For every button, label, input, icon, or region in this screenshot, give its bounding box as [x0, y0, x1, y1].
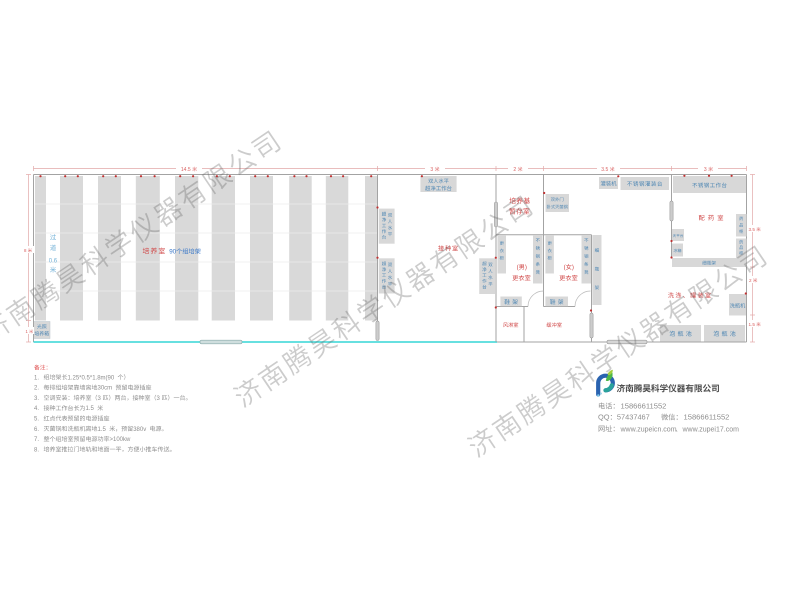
svg-text:1.25*0.5*1.8m(90: 1.25*0.5*1.8m(90 [68, 375, 115, 381]
svg-text:www.zupeicn.com: www.zupeicn.com [620, 426, 677, 433]
svg-text:7.: 7. [34, 437, 39, 443]
svg-text:14.5: 14.5 [181, 167, 191, 173]
svg-text:15866611552: 15866611552 [621, 402, 667, 411]
svg-text:0.6: 0.6 [49, 259, 58, 265]
svg-text:8.: 8. [34, 447, 39, 453]
svg-text:2.: 2. [34, 386, 39, 392]
svg-text:2: 2 [513, 167, 516, 173]
svg-text:57437467: 57437467 [617, 413, 650, 422]
svg-text:1.5: 1.5 [98, 427, 107, 433]
svg-text:3.5: 3.5 [749, 227, 756, 232]
svg-text:5.: 5. [34, 417, 39, 423]
svg-text:15866611552: 15866611552 [684, 413, 730, 422]
svg-text:(: ( [564, 264, 567, 271]
svg-text:6.: 6. [34, 427, 39, 433]
svg-text:1.5: 1.5 [749, 322, 756, 327]
svg-text:): ) [572, 264, 574, 271]
svg-text:3: 3 [704, 167, 707, 173]
svg-text:3.: 3. [34, 396, 39, 402]
svg-text:QQ: QQ [598, 413, 610, 422]
svg-text:>100kw: >100kw [110, 437, 132, 443]
svg-text:2: 2 [749, 278, 752, 283]
svg-text:1.5: 1.5 [86, 406, 95, 412]
svg-text:380v: 380v [133, 427, 146, 433]
svg-text:3: 3 [98, 396, 102, 402]
svg-text:90: 90 [169, 249, 176, 256]
svg-text:4.: 4. [34, 406, 39, 412]
svg-text:3.5: 3.5 [601, 167, 608, 173]
svg-text:3: 3 [430, 167, 433, 173]
svg-text:www.zupei17.com: www.zupei17.com [682, 426, 740, 433]
svg-text:30cm: 30cm [98, 386, 113, 392]
svg-text:3: 3 [157, 396, 161, 402]
svg-text:): ) [525, 264, 527, 271]
svg-text:1.: 1. [34, 375, 39, 381]
